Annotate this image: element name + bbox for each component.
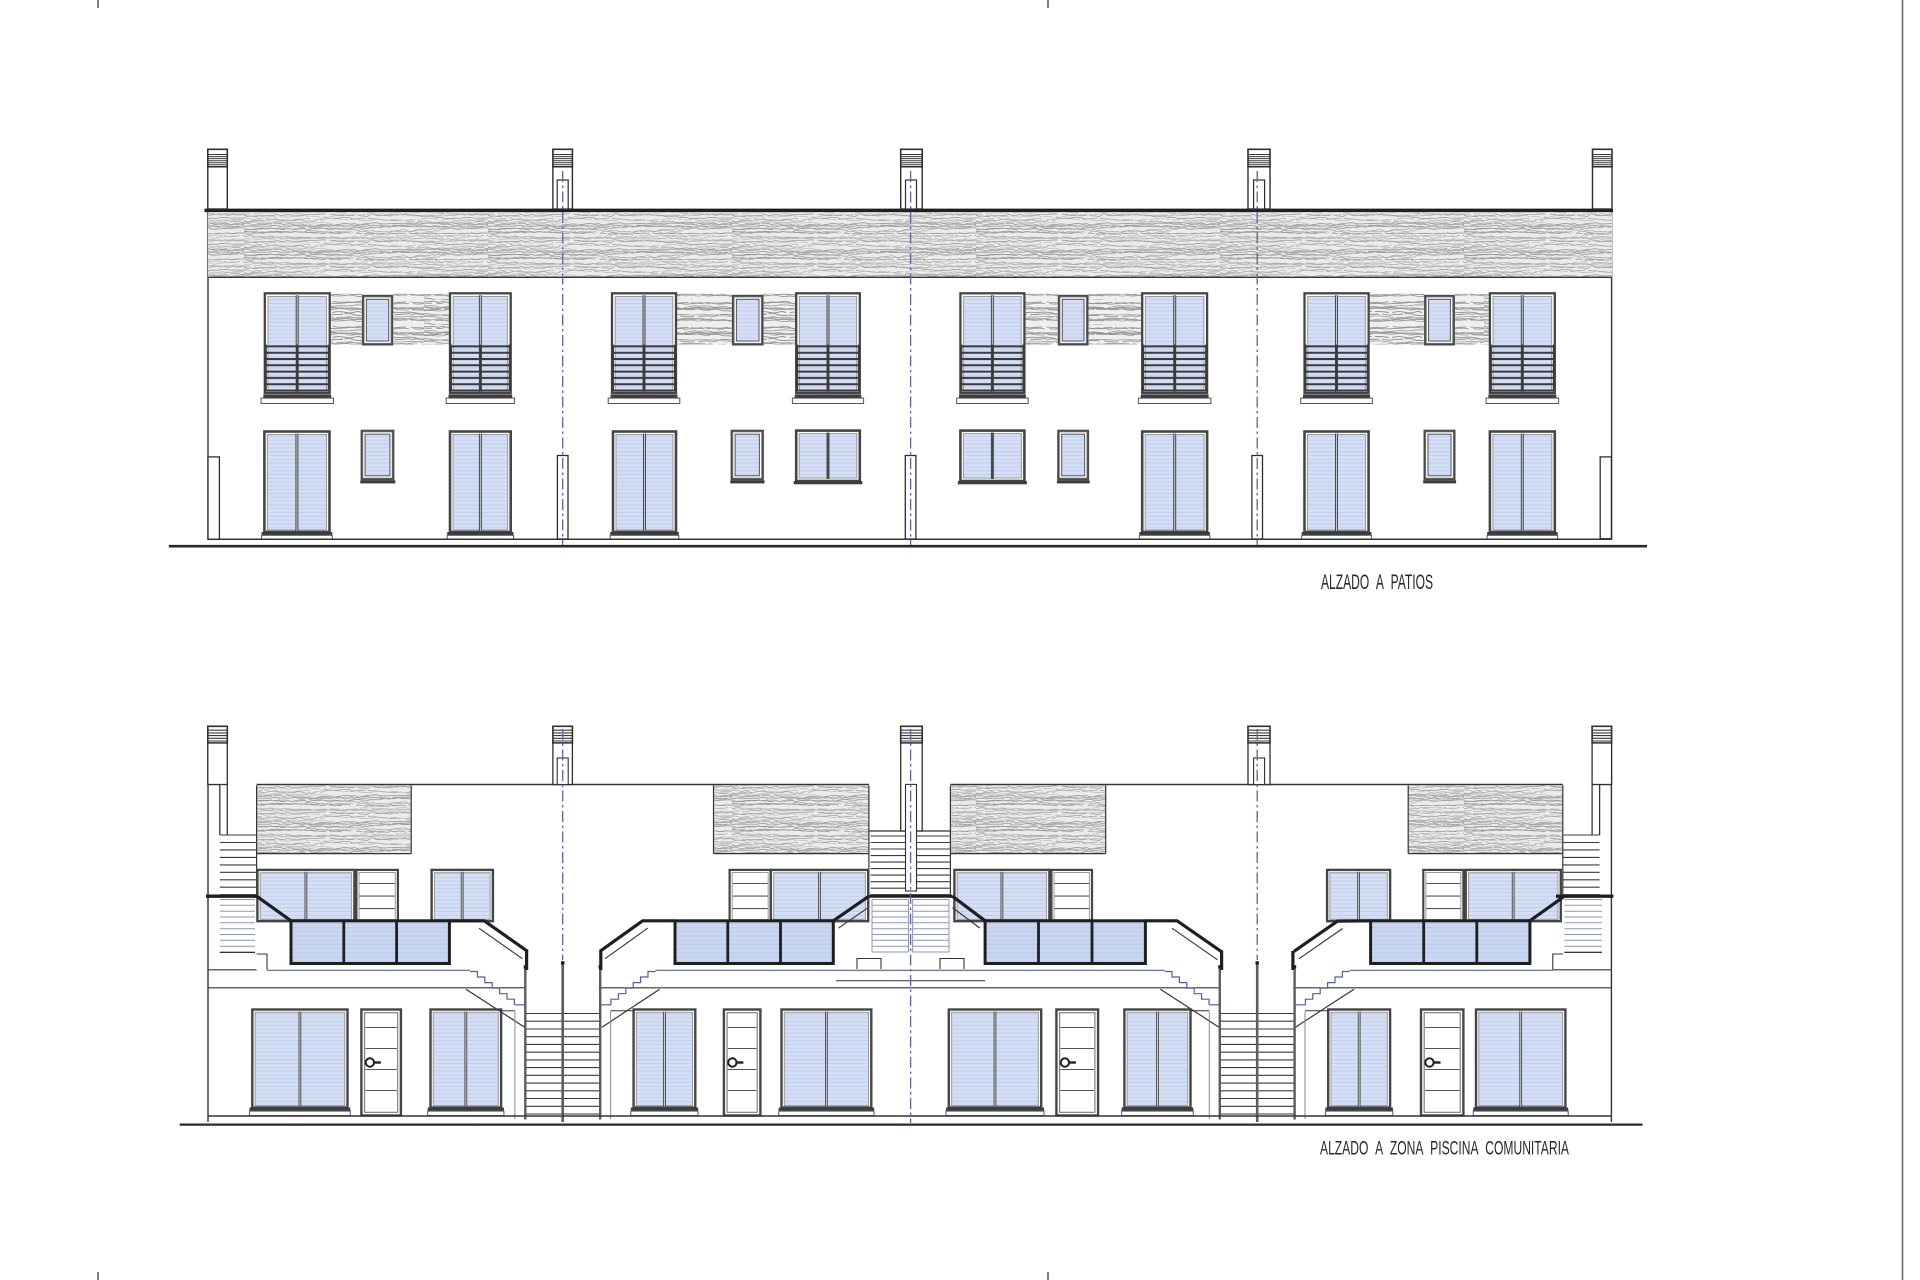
- svg-text:ALZADO A ZONA PISCINA COMU: ALZADO A ZONA PISCINA COMUNITARIA: [1320, 1139, 1569, 1160]
- svg-text:ALZADO A PATIOS: ALZADO A PATIOS: [1321, 571, 1433, 594]
